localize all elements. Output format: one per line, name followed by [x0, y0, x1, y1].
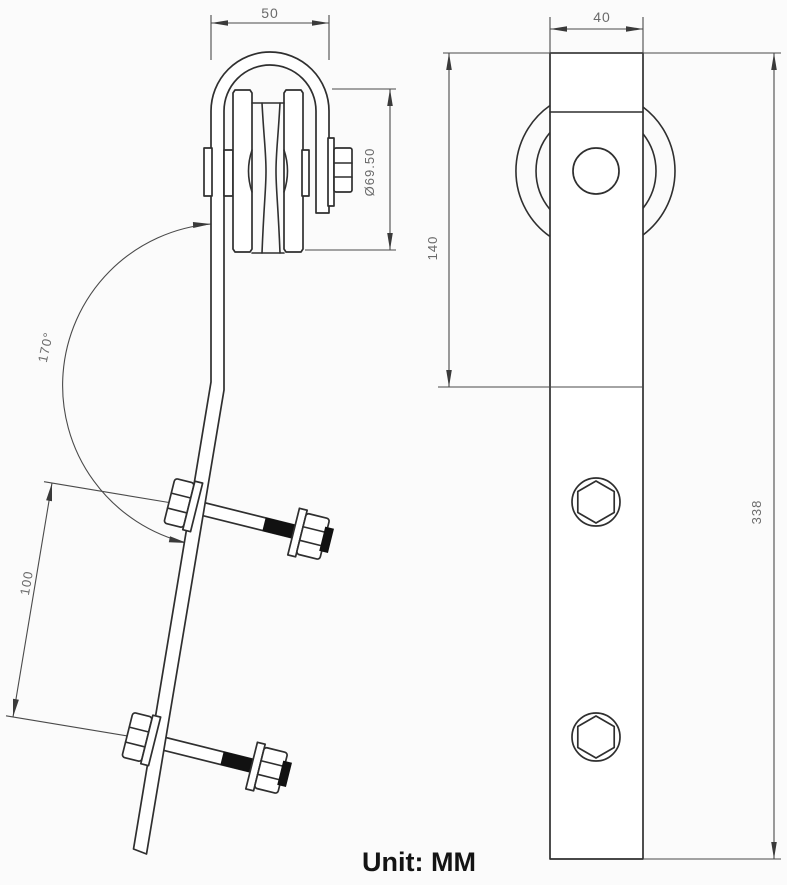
arrowhead [211, 20, 228, 26]
dim-label-total-length: 338 [749, 500, 764, 525]
dim-label-wheel-diameter: Ø69.50 [362, 148, 377, 197]
dim-strap-width: 40 [550, 9, 643, 53]
groove-profile-right [276, 103, 280, 253]
dim-label-bend-angle: 170° [35, 330, 56, 363]
arrowhead [446, 53, 452, 70]
side-view: 50 Ø69.50 170° 100 [6, 5, 396, 854]
axle-spacer-left [224, 150, 233, 196]
arrowhead [13, 699, 19, 717]
dim-bolt-spacing: 100 [6, 482, 172, 740]
arrowhead [312, 20, 329, 26]
arrowhead [550, 26, 567, 32]
bolt-1-front [572, 478, 620, 526]
axle-hole [573, 148, 619, 194]
arrowhead [771, 842, 777, 859]
arrowhead [446, 370, 452, 387]
axle-nut [334, 148, 352, 192]
axle-washer [328, 138, 334, 206]
arrowhead [771, 53, 777, 70]
dim-label-bolt-spacing: 100 [17, 569, 36, 596]
arrowhead [387, 233, 393, 250]
unit-note: Unit: MM [362, 847, 476, 877]
lag-bolt-2-shaft [149, 718, 295, 798]
bolt-2-front [572, 713, 620, 761]
technical-drawing: 50 Ø69.50 170° 100 [0, 0, 787, 885]
groove-profile-left [262, 103, 266, 253]
dim-total-length: 338 [643, 53, 781, 859]
front-view: 40 140 338 [425, 9, 781, 859]
lag-bolt-1-shaft [191, 484, 337, 564]
dim-label-yoke-width: 50 [261, 5, 279, 21]
arrowhead [46, 483, 52, 501]
axle-end [204, 148, 212, 196]
dim-label-strap-width: 40 [593, 9, 611, 25]
barn-door-roller-drawing: 50 Ø69.50 170° 100 [0, 0, 787, 885]
arrowhead [626, 26, 643, 32]
axle-spacer-right [302, 150, 309, 196]
dim-label-wheel-drop: 140 [425, 236, 440, 261]
arrowhead [193, 222, 211, 228]
arrowhead [387, 89, 393, 106]
